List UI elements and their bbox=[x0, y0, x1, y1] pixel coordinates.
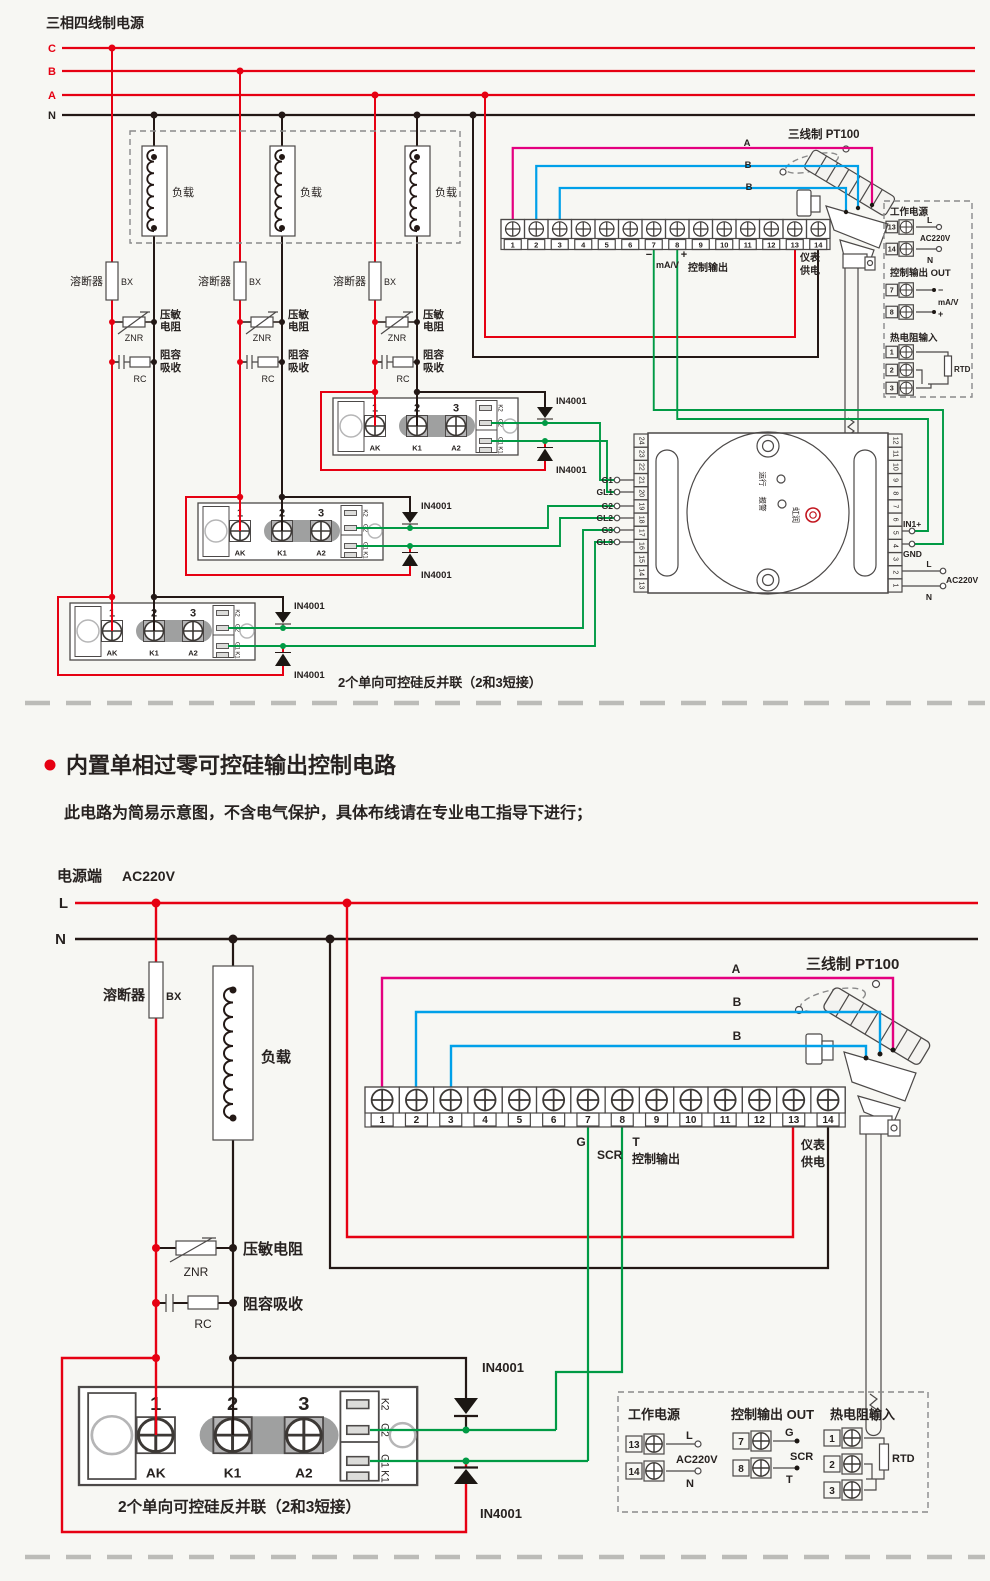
varistor-label-l1: 压敏 bbox=[160, 308, 181, 321]
junction-dots-bottom bbox=[152, 899, 470, 1465]
section-subtitle: 此电路为简易示意图，不含电气保护，具体布线请在专业电工指导下进行； bbox=[64, 803, 592, 822]
t-label: T bbox=[632, 1135, 640, 1149]
fuse-code-2: BX bbox=[249, 277, 261, 287]
varistor-label-l1: 压敏 bbox=[423, 308, 444, 321]
section-title: 内置单相过零可控硅输出控制电路 bbox=[66, 753, 397, 778]
controller-terminal-number: 8 bbox=[892, 491, 899, 495]
g-label: G bbox=[576, 1135, 585, 1149]
controller-terminal-number: 3 bbox=[892, 557, 899, 561]
terminal-screw-icon bbox=[647, 222, 661, 236]
panel-screw-icon bbox=[900, 364, 912, 376]
controller-left-terminals: 242322212019181716151413 bbox=[634, 434, 648, 592]
terminal-screw-icon bbox=[577, 1090, 598, 1111]
terminal-number: 3 bbox=[448, 1115, 454, 1126]
panel-screw-icon bbox=[900, 243, 912, 255]
controller-terminal-number: 18 bbox=[638, 516, 645, 524]
terminal-number: 1 bbox=[379, 1115, 385, 1126]
gate-label-g3: G3 bbox=[602, 525, 614, 535]
panel-terminal-number: 14 bbox=[888, 245, 896, 254]
terminal-number: 4 bbox=[482, 1115, 488, 1126]
brand-label: 虹润 bbox=[791, 507, 801, 523]
controller-terminal-number: 2 bbox=[892, 570, 899, 574]
terminal-number: 10 bbox=[685, 1115, 697, 1126]
run-led bbox=[777, 475, 785, 483]
controller-terminal-number: 20 bbox=[638, 489, 645, 497]
panel-terminal-1: 1 bbox=[824, 1428, 862, 1448]
terminal-number: 12 bbox=[754, 1115, 766, 1126]
diode-label: IN4001 bbox=[294, 601, 325, 612]
wire-b-label: B bbox=[733, 1029, 742, 1043]
terminal-screw-icon bbox=[600, 222, 614, 236]
varistor-label-l2: 电阻 bbox=[423, 320, 444, 333]
top-title: 三相四线制电源 bbox=[46, 15, 144, 31]
panel-terminal-8: 8 bbox=[733, 1458, 771, 1478]
varistor-label-l1: 压敏 bbox=[288, 308, 309, 321]
znr-label: ZNR bbox=[388, 333, 407, 343]
l-label: L bbox=[926, 559, 931, 569]
controller: 运行 报警 虹润 242322212019181716151413 121110… bbox=[596, 432, 978, 602]
terminal-number: 7 bbox=[585, 1115, 591, 1126]
terminal-reference-panel-bottom: 工作电源 13 14 L AC220V N 控制输出 OUT 7 8 G SCR… bbox=[618, 1392, 928, 1512]
controller-terminal-number: 9 bbox=[892, 478, 899, 482]
panel-mav-label: mA/V bbox=[938, 298, 959, 307]
fuse-label-2: 溶断器 bbox=[198, 274, 231, 288]
scr-module-2 bbox=[198, 503, 383, 560]
znr-label: ZNR bbox=[184, 1265, 209, 1279]
controller-terminal-number: 5 bbox=[892, 531, 899, 535]
panel-ac220v-label: AC220V bbox=[676, 1454, 718, 1466]
varistor-label: 压敏电阻 bbox=[243, 1240, 303, 1258]
terminal-screw-icon bbox=[475, 1090, 496, 1111]
scr-module-1 bbox=[333, 398, 518, 455]
terminal-screw-icon bbox=[818, 1090, 839, 1111]
controller-terminal-number: 14 bbox=[638, 568, 645, 576]
controller-right-terminals: 121110987654321 bbox=[888, 434, 902, 592]
panel-screw-icon bbox=[753, 1460, 769, 1476]
varistor-label-l2: 电阻 bbox=[288, 320, 309, 333]
gate-label-gl2: GL2 bbox=[596, 513, 613, 523]
controller-terminal-number: 4 bbox=[892, 544, 899, 548]
fuse-label-3: 溶断器 bbox=[333, 274, 366, 288]
panel-terminal-14: 14 bbox=[626, 1461, 664, 1481]
terminal-screw-icon bbox=[529, 222, 543, 236]
terminal-screw-icon bbox=[506, 222, 520, 236]
fuse-code-3: BX bbox=[384, 277, 396, 287]
terminal-number: 13 bbox=[791, 240, 799, 249]
wire-a-label: A bbox=[744, 138, 751, 149]
branch-2: ZNR RC 压敏 电阻 阻容 吸收 bbox=[240, 308, 309, 384]
panel-terminal-number: 7 bbox=[738, 1437, 744, 1448]
panel-n-label: N bbox=[927, 255, 933, 265]
work-power-title: 工作电源 bbox=[628, 1407, 680, 1422]
single-phase-diagram: 电源端 AC220V bbox=[55, 867, 978, 1532]
rc-label: RC bbox=[397, 374, 410, 384]
controller-terminal-number: 17 bbox=[638, 529, 645, 537]
ac220v-label: AC220V bbox=[946, 575, 978, 585]
terminal-screw-icon bbox=[717, 222, 731, 236]
work-power-title: 工作电源 bbox=[890, 206, 929, 218]
scr-module-bottom bbox=[79, 1387, 417, 1485]
branch-1: ZNR RC 压敏 电阻 阻容 吸收 bbox=[112, 308, 181, 384]
panel-l-label: L bbox=[686, 1430, 693, 1442]
terminal-screw-icon bbox=[543, 1090, 564, 1111]
controller-terminal-number: 15 bbox=[638, 555, 645, 563]
fuse-bottom: 溶断器 BX bbox=[103, 962, 182, 1018]
controller-terminal-number: 16 bbox=[638, 542, 645, 550]
controller-terminal-number: 21 bbox=[638, 476, 645, 484]
in1-label: IN1+ bbox=[903, 519, 921, 529]
terminal-number: 5 bbox=[517, 1115, 523, 1126]
plus-label: + bbox=[681, 249, 687, 261]
rc-label: RC bbox=[194, 1317, 212, 1331]
panel-screw-icon bbox=[844, 1482, 860, 1498]
rtd-label: RTD bbox=[892, 1453, 915, 1465]
diode-label: IN4001 bbox=[480, 1506, 522, 1521]
terminal-screw-icon bbox=[811, 222, 825, 236]
controller-terminal-number: 23 bbox=[638, 450, 645, 458]
meter-supply-l2: 供电 bbox=[799, 264, 820, 277]
controller-terminal-number: 19 bbox=[638, 503, 645, 511]
terminal-screw-icon bbox=[715, 1090, 736, 1111]
terminal-number: 5 bbox=[605, 240, 609, 249]
terminal-number: 1 bbox=[511, 240, 515, 249]
fuse-label: 溶断器 bbox=[103, 987, 146, 1003]
protection-branches: ZNR RC 压敏 电阻 阻容 吸收 ZNR RC 压敏 电阻 阻容 吸收 bbox=[112, 308, 444, 384]
control-output-title: 控制输出 OUT bbox=[731, 1407, 814, 1422]
controller-terminal-number: 22 bbox=[638, 463, 645, 471]
panel-terminal-number: 1 bbox=[829, 1434, 835, 1445]
panel-g-label: G bbox=[785, 1427, 794, 1439]
terminal-number: 11 bbox=[744, 240, 752, 249]
fuse-label-1: 溶断器 bbox=[70, 274, 103, 288]
gate-label-gl1: GL1 bbox=[596, 487, 613, 497]
panel-screw-icon bbox=[646, 1436, 662, 1452]
panel-screw-icon bbox=[900, 346, 912, 358]
phase-label-b: B bbox=[48, 66, 56, 78]
panel-screw-icon bbox=[646, 1463, 662, 1479]
panel-terminal-7: 7 bbox=[733, 1431, 771, 1451]
wire-b-label: B bbox=[745, 160, 752, 171]
terminal-number: 8 bbox=[675, 240, 679, 249]
source-voltage: AC220V bbox=[122, 868, 176, 884]
panel-terminal-13: 13 bbox=[886, 220, 913, 234]
panel-screw-icon bbox=[844, 1456, 860, 1472]
alarm-led bbox=[778, 500, 786, 508]
terminal-screw-icon bbox=[553, 222, 567, 236]
pt100-label-top: 三线制 PT100 bbox=[788, 127, 860, 141]
controller-terminal-number: 11 bbox=[892, 450, 899, 457]
snubber-label-l2: 吸收 bbox=[160, 361, 181, 374]
scr-label: SCR bbox=[597, 1148, 623, 1162]
terminal-screw-icon bbox=[680, 1090, 701, 1111]
terminal-screw-icon bbox=[749, 1090, 770, 1111]
phase-labels: C B A N bbox=[48, 43, 56, 122]
line-n-label: N bbox=[55, 931, 66, 948]
controller-terminal-number: 10 bbox=[892, 463, 899, 471]
rtd-label: RTD bbox=[954, 365, 971, 374]
diode-label: IN4001 bbox=[421, 570, 452, 581]
terminal-screw-icon bbox=[576, 222, 590, 236]
run-indicator-label: 运行 bbox=[758, 472, 768, 487]
pt100-label-bottom: 三线制 PT100 bbox=[806, 955, 899, 973]
panel-minus-label: − bbox=[938, 285, 943, 295]
fuse-code-1: BX bbox=[121, 277, 133, 287]
phase-lines bbox=[62, 48, 975, 115]
snubber-label-l1: 阻容 bbox=[160, 348, 181, 361]
diode-label: IN4001 bbox=[294, 670, 325, 681]
terminal-number: 14 bbox=[822, 1115, 834, 1126]
terminal-number: 11 bbox=[720, 1115, 731, 1126]
rtd-input-title: 热电阻输入 bbox=[830, 1407, 895, 1422]
panel-terminal-number: 3 bbox=[890, 384, 894, 393]
load-label-1: 负载 bbox=[172, 185, 194, 199]
snubber-label: 阻容吸收 bbox=[243, 1295, 303, 1313]
panel-terminal-number: 2 bbox=[829, 1460, 835, 1471]
panel-terminal-13: 13 bbox=[626, 1434, 664, 1454]
terminal-number: 2 bbox=[414, 1115, 420, 1126]
terminal-screw-icon bbox=[741, 222, 755, 236]
panel-plus-label: + bbox=[938, 309, 943, 319]
terminal-screw-icon bbox=[440, 1090, 461, 1111]
load-label-2: 负载 bbox=[300, 185, 322, 199]
snubber-label-l2: 吸收 bbox=[288, 361, 309, 374]
znr-bottom: ZNR 压敏电阻 bbox=[156, 1238, 303, 1279]
panel-terminal-number: 3 bbox=[829, 1486, 835, 1497]
znr-label: ZNR bbox=[125, 333, 144, 343]
terminal-screw-icon bbox=[788, 222, 802, 236]
terminal-number: 9 bbox=[699, 240, 703, 249]
instrument-terminal-strip-bottom: 1234567891011121314 G SCR T 控制输出 仪表 供电 bbox=[365, 1087, 845, 1169]
load-bottom: 负载 bbox=[213, 966, 291, 1140]
terminal-reference-panel-top: 工作电源 13 14 L AC220V N 控制输出 OUT 7 8 − mA/… bbox=[884, 201, 972, 397]
line-l-label: L bbox=[59, 895, 68, 912]
panel-terminal-2: 2 bbox=[886, 363, 913, 377]
controller-terminal-number: 1 bbox=[892, 584, 899, 588]
diodes-bottom: IN4001 IN4001 bbox=[454, 1360, 524, 1521]
panel-terminal-2: 2 bbox=[824, 1454, 862, 1474]
terminal-number: 7 bbox=[652, 240, 656, 249]
snubber-label-l1: 阻容 bbox=[423, 348, 444, 361]
controller-terminal-number: 12 bbox=[892, 437, 899, 445]
controller-terminal-number: 24 bbox=[638, 437, 645, 445]
terminal-screw-icon bbox=[623, 222, 637, 236]
bullet-icon bbox=[45, 760, 56, 771]
meter-supply-l1: 仪表 bbox=[799, 251, 821, 264]
controller-terminal-number: 13 bbox=[638, 582, 645, 590]
diode-label: IN4001 bbox=[556, 396, 587, 407]
minus-label: − bbox=[646, 249, 652, 261]
terminal-number: 2 bbox=[534, 240, 538, 249]
terminal-screw-icon bbox=[764, 222, 778, 236]
panel-terminal-number: 8 bbox=[738, 1464, 744, 1475]
panel-terminal-1: 1 bbox=[886, 345, 913, 359]
panel-terminal-number: 2 bbox=[890, 366, 894, 375]
panel-terminal-3: 3 bbox=[886, 381, 913, 395]
terminal-screw-icon bbox=[646, 1090, 667, 1111]
panel-l-label: L bbox=[927, 215, 932, 225]
panel-terminal-7: 7 bbox=[886, 283, 913, 297]
panel-terminal-number: 7 bbox=[890, 286, 894, 295]
panel-n-label: N bbox=[686, 1478, 694, 1490]
rc-label: RC bbox=[134, 374, 147, 384]
load-label: 负载 bbox=[261, 1048, 291, 1066]
three-phase-diagram: 三相四线制电源 bbox=[46, 15, 978, 690]
rtd-input-title: 热电阻输入 bbox=[890, 332, 938, 344]
fuses: 溶断器 BX 溶断器 BX 溶断器 BX bbox=[70, 262, 396, 300]
terminal-screw-icon bbox=[509, 1090, 530, 1111]
snubber-label-l2: 吸收 bbox=[423, 361, 444, 374]
gate-label-gl3: GL3 bbox=[596, 537, 613, 547]
meter-supply-l1: 仪表 bbox=[800, 1137, 826, 1152]
wiring-diagram: 1 2 3 AK K1 A2 K2 G2 G1 K1 三相四线制电源 bbox=[0, 0, 990, 1581]
panel-terminal-3: 3 bbox=[824, 1480, 862, 1500]
terminal-number: 6 bbox=[628, 240, 632, 249]
gate-label-g1: G1 bbox=[602, 475, 614, 485]
controller-terminal-number: 6 bbox=[892, 518, 899, 522]
fuse-code: BX bbox=[166, 991, 182, 1003]
gate-label-g2: G2 bbox=[602, 501, 614, 511]
rc-bottom: RC 阻容吸收 bbox=[156, 1294, 303, 1331]
diode-label: IN4001 bbox=[421, 501, 452, 512]
znr-label: ZNR bbox=[253, 333, 272, 343]
panel-terminal-number: 1 bbox=[890, 348, 894, 357]
diode-label: IN4001 bbox=[556, 465, 587, 476]
terminal-number: 6 bbox=[551, 1115, 557, 1126]
n-label: N bbox=[926, 592, 932, 602]
wiring-diagram-page: 1 2 3 AK K1 A2 K2 G2 G1 K1 三相四线制电源 bbox=[0, 0, 990, 1581]
wire-b-label: B bbox=[746, 182, 753, 193]
section-heading: 内置单相过零可控硅输出控制电路 此电路为简易示意图，不含电气保护，具体布线请在专… bbox=[45, 753, 593, 822]
terminal-screw-icon bbox=[694, 222, 708, 236]
panel-screw-icon bbox=[900, 221, 912, 233]
terminal-number: 3 bbox=[558, 240, 562, 249]
panel-terminal-number: 13 bbox=[888, 223, 896, 232]
panel-terminal-number: 8 bbox=[890, 308, 894, 317]
terminal-screw-icon bbox=[783, 1090, 804, 1111]
terminal-number: 9 bbox=[654, 1115, 660, 1126]
meter-supply-l2: 供电 bbox=[800, 1154, 825, 1169]
terminal-number: 12 bbox=[767, 240, 775, 249]
panel-terminal-number: 13 bbox=[628, 1440, 640, 1451]
scr-caption-bottom: 2个单向可控硅反并联（2和3短接） bbox=[118, 1497, 361, 1516]
panel-screw-icon bbox=[900, 284, 912, 296]
pt100-sensor-bottom bbox=[796, 981, 932, 1436]
control-output-title: 控制输出 OUT bbox=[890, 267, 951, 279]
panel-screw-icon bbox=[900, 306, 912, 318]
scr-module-3 bbox=[70, 603, 255, 660]
panel-terminal-number: 14 bbox=[628, 1467, 640, 1478]
terminal-number: 14 bbox=[814, 240, 823, 249]
terminal-number: 13 bbox=[788, 1115, 800, 1126]
source-label: 电源端 bbox=[57, 867, 102, 885]
snubber-label-l1: 阻容 bbox=[288, 348, 309, 361]
diode-label: IN4001 bbox=[482, 1360, 524, 1375]
terminal-screw-icon bbox=[406, 1090, 427, 1111]
mav-label: mA/V bbox=[656, 260, 679, 270]
panel-screw-icon bbox=[900, 382, 912, 394]
gnd-label: GND bbox=[903, 549, 922, 559]
panel-ac220v-label: AC220V bbox=[920, 234, 951, 243]
control-output-label: 控制输出 bbox=[688, 261, 728, 274]
alarm-indicator-label: 报警 bbox=[758, 497, 768, 512]
wire-b-label: B bbox=[733, 995, 742, 1009]
phase-label-c: C bbox=[48, 43, 56, 55]
branch-3: ZNR RC 压敏 电阻 阻容 吸收 bbox=[375, 308, 444, 384]
control-output-label: 控制输出 bbox=[632, 1151, 680, 1166]
panel-scr-label: SCR bbox=[790, 1451, 813, 1463]
terminal-screw-icon bbox=[670, 222, 684, 236]
panel-screw-icon bbox=[753, 1433, 769, 1449]
terminal-screw-icon bbox=[612, 1090, 633, 1111]
rc-label: RC bbox=[262, 374, 275, 384]
phase-label-a: A bbox=[48, 90, 56, 102]
panel-terminal-14: 14 bbox=[886, 242, 913, 256]
terminal-number: 8 bbox=[619, 1115, 625, 1126]
panel-screw-icon bbox=[844, 1430, 860, 1446]
panel-t-label: T bbox=[786, 1474, 793, 1486]
instrument-terminal-strip-top: 1234567891011121314 − mA/V + 控制输出 仪表 供电 bbox=[501, 220, 830, 278]
controller-terminal-number: 7 bbox=[892, 504, 899, 508]
load-label-3: 负载 bbox=[435, 185, 457, 199]
panel-terminal-8: 8 bbox=[886, 305, 913, 319]
wire-a-label: A bbox=[732, 962, 741, 976]
scr-caption-top: 2个单向可控硅反并联（2和3短接） bbox=[338, 675, 542, 690]
varistor-label-l2: 电阻 bbox=[160, 320, 181, 333]
terminal-screw-icon bbox=[372, 1090, 393, 1111]
loads: 负载 负载 负载 bbox=[142, 146, 457, 236]
terminal-number: 10 bbox=[720, 240, 728, 249]
phase-label-n: N bbox=[48, 110, 56, 122]
